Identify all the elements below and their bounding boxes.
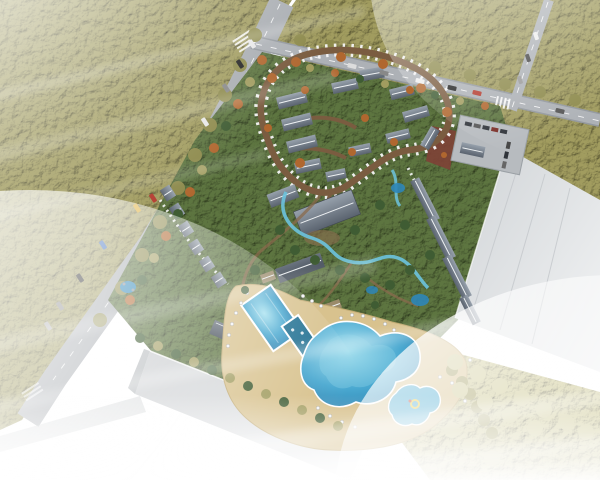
rendering-canvas <box>0 0 600 480</box>
aerial-rendering <box>0 0 600 480</box>
